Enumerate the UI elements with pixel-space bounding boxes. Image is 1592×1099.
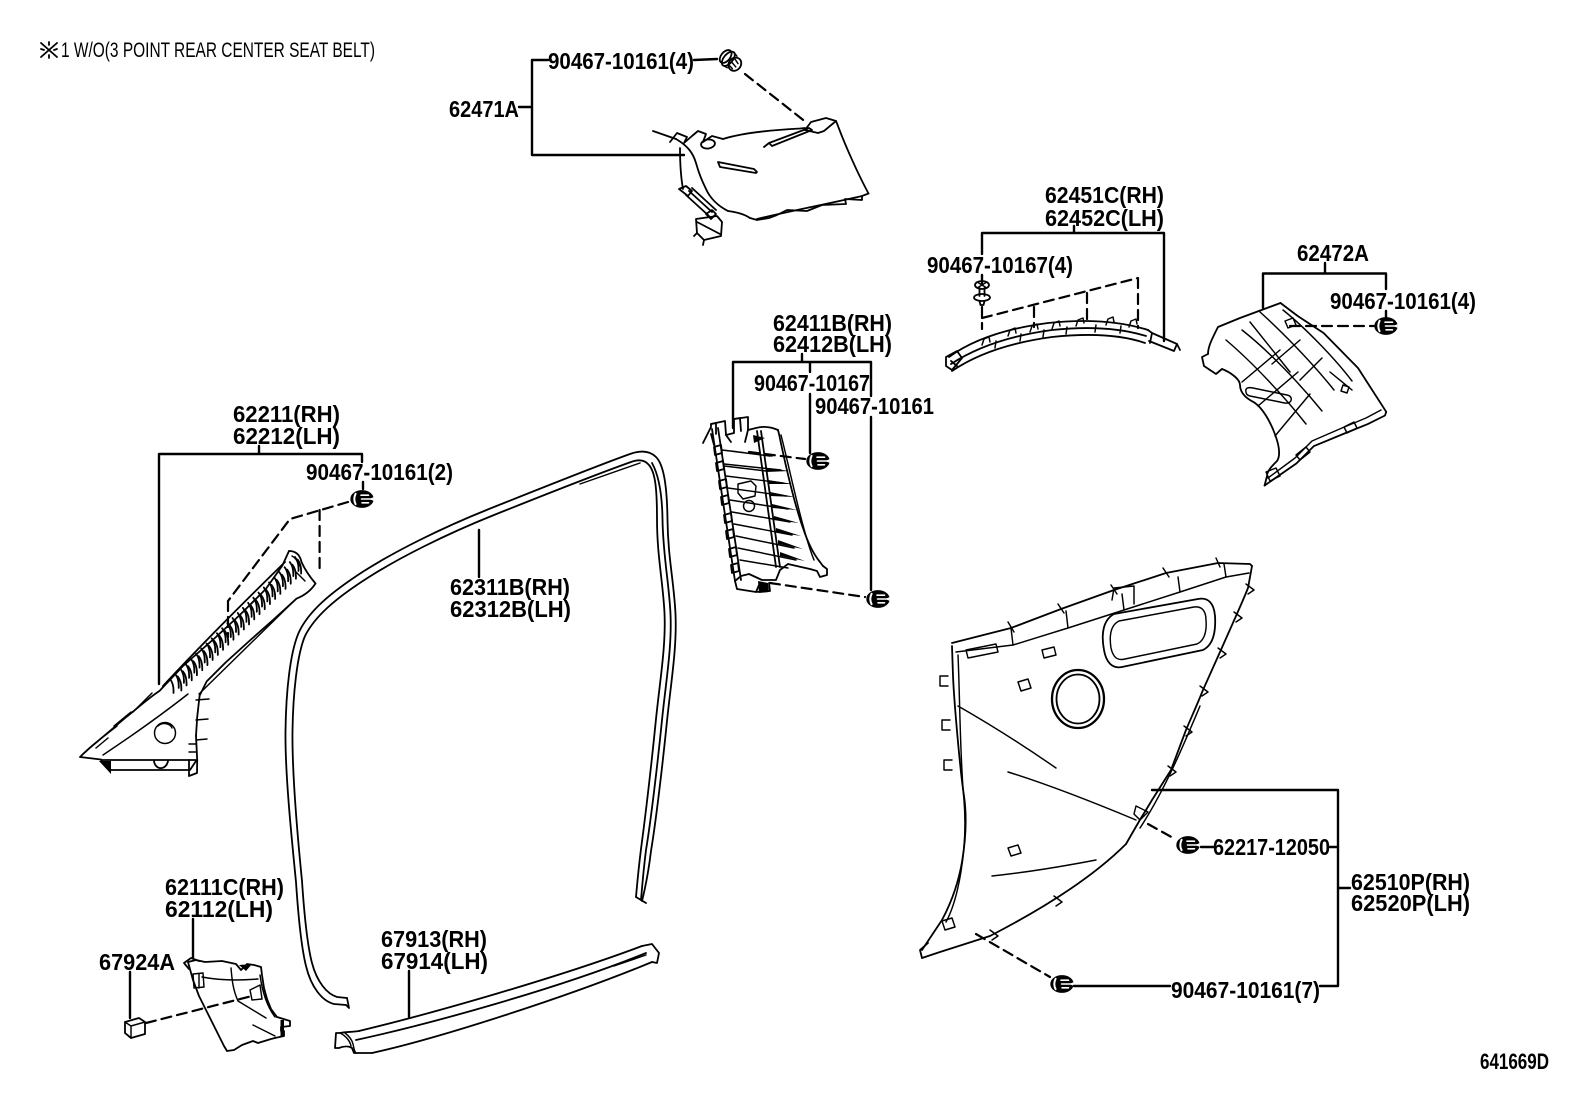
svg-text:90467-10161: 90467-10161 xyxy=(815,393,934,419)
svg-text:90467-10161(4): 90467-10161(4) xyxy=(1330,288,1476,314)
svg-text:62212(LH): 62212(LH) xyxy=(233,423,340,449)
svg-text:62471A: 62471A xyxy=(449,96,519,122)
svg-text:62312B(LH): 62312B(LH) xyxy=(450,596,571,622)
svg-text:62520P(LH): 62520P(LH) xyxy=(1351,890,1470,916)
svg-text:90467-10161(2): 90467-10161(2) xyxy=(306,459,453,485)
svg-text:1 W/O(3 POINT REAR CENTER SEAT: 1 W/O(3 POINT REAR CENTER SEAT BELT) xyxy=(61,39,375,62)
svg-text:62112(LH): 62112(LH) xyxy=(165,896,273,922)
svg-text:641669D: 641669D xyxy=(1480,1049,1549,1074)
svg-text:62217-12050: 62217-12050 xyxy=(1213,834,1330,860)
svg-text:90467-10161(4): 90467-10161(4) xyxy=(548,48,694,74)
svg-text:90467-10167(4): 90467-10167(4) xyxy=(927,252,1073,278)
svg-text:62412B(LH): 62412B(LH) xyxy=(773,331,892,357)
svg-text:62472A: 62472A xyxy=(1297,240,1369,266)
svg-text:67924A: 67924A xyxy=(99,949,175,975)
svg-text:62452C(LH): 62452C(LH) xyxy=(1045,205,1164,231)
svg-text:90467-10161(7): 90467-10161(7) xyxy=(1171,977,1320,1003)
svg-text:67914(LH): 67914(LH) xyxy=(381,948,488,974)
